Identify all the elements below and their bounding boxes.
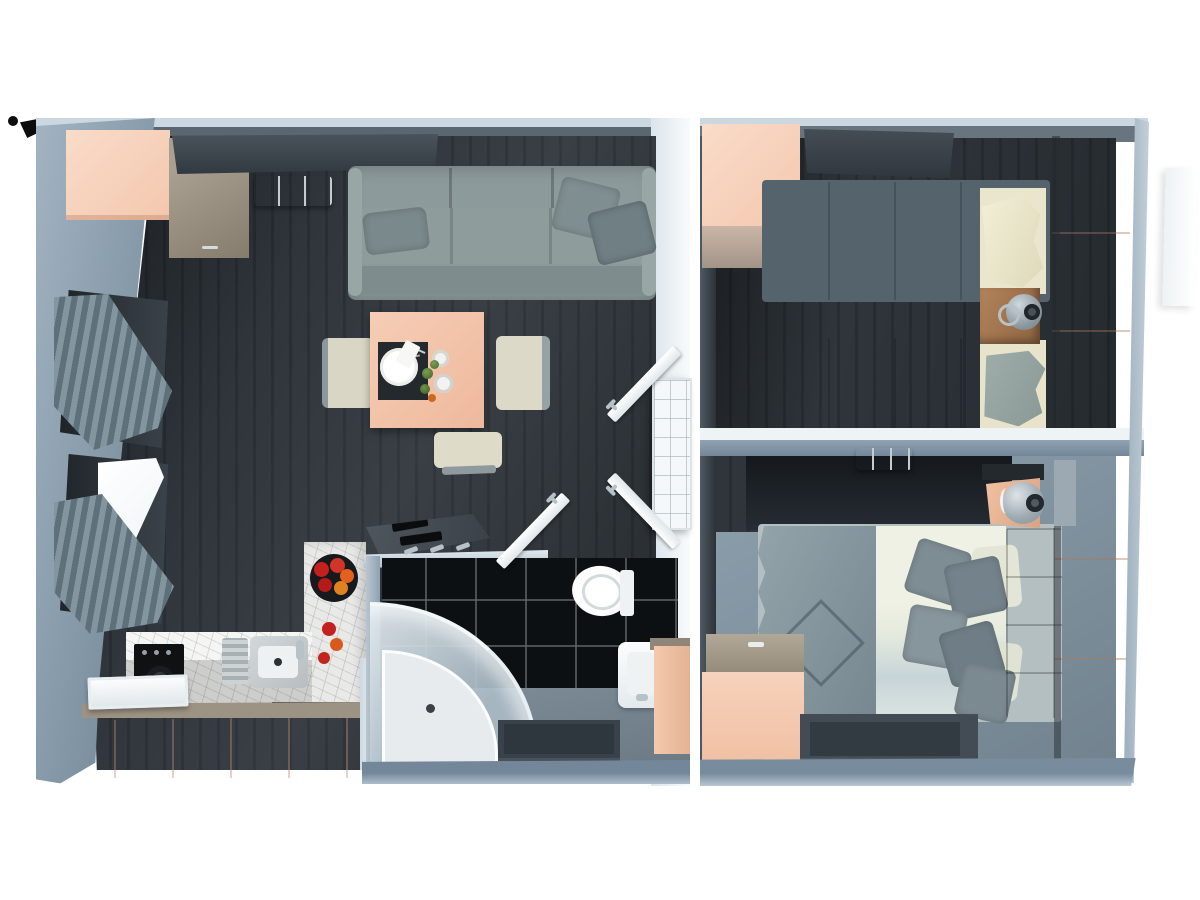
radiator bbox=[652, 378, 692, 530]
lamp-lens bbox=[1024, 304, 1040, 320]
living-unit bbox=[36, 118, 690, 786]
apple-decor-2 bbox=[330, 638, 343, 651]
twin-tall-wardrobe bbox=[1052, 136, 1130, 430]
sink-drain bbox=[274, 658, 282, 666]
apple-decor-3 bbox=[318, 652, 330, 664]
lamp-chrome-ring bbox=[998, 304, 1020, 326]
plant-3 bbox=[430, 360, 439, 369]
dresser-handle bbox=[748, 642, 764, 647]
fruit-bowl bbox=[310, 554, 358, 602]
sofa-pillow-left bbox=[362, 206, 431, 255]
basin-faucet bbox=[636, 694, 648, 701]
sofa-armrest-left bbox=[348, 168, 362, 296]
window-2-open bbox=[46, 450, 182, 636]
faucet bbox=[296, 640, 304, 660]
bath-mat-inner bbox=[504, 724, 614, 754]
wall-panel-outside bbox=[1162, 168, 1198, 307]
bed2-duvet bbox=[764, 338, 982, 436]
compass-dot bbox=[8, 116, 18, 126]
sofa-front bbox=[354, 266, 650, 294]
nightstand-top bbox=[982, 464, 1044, 480]
dining-set bbox=[316, 308, 548, 476]
oven-knob bbox=[154, 650, 159, 655]
corner-wardrobe bbox=[66, 130, 170, 220]
towel-hook bbox=[404, 546, 419, 555]
shower-drain bbox=[426, 704, 435, 713]
window-1 bbox=[46, 288, 182, 458]
bedroom-divider-wall bbox=[700, 440, 1144, 456]
rug-inner bbox=[810, 722, 960, 756]
sphere-lamp-highlight bbox=[1000, 488, 1013, 514]
vanity-cabinet bbox=[654, 646, 690, 754]
wardrobe-shadow-seam bbox=[1052, 136, 1060, 430]
kitchen-base-front bbox=[58, 716, 360, 778]
dining-chair-bottom bbox=[434, 432, 502, 468]
dining-chair-left bbox=[322, 338, 374, 408]
twin-corner-wardrobe-side bbox=[702, 226, 770, 268]
shower-tray bbox=[382, 650, 498, 768]
bath-mat bbox=[498, 720, 620, 766]
dresser-front bbox=[702, 672, 804, 762]
cabinet-handle bbox=[202, 246, 218, 249]
dishwasher bbox=[87, 674, 188, 709]
floorplan-render bbox=[0, 0, 1200, 900]
double-sphere-lamp bbox=[998, 480, 1048, 524]
apple-decor-1 bbox=[322, 622, 336, 636]
double-tall-wardrobe bbox=[1054, 460, 1130, 762]
wardrobe-shadow-seam bbox=[1054, 526, 1061, 762]
plant-1 bbox=[422, 368, 433, 379]
bedrooms-wall-bottom bbox=[700, 758, 1140, 786]
living-wall-bottom bbox=[362, 760, 690, 784]
toilet-seat-ring bbox=[580, 572, 625, 613]
single-bed-2 bbox=[762, 338, 1050, 436]
dining-chair-right bbox=[496, 336, 550, 410]
sink-drainer bbox=[222, 638, 248, 684]
sphere-lamp-lens bbox=[1026, 494, 1044, 512]
sofa bbox=[348, 166, 656, 300]
dresser-top bbox=[706, 634, 804, 674]
kitchen-sink bbox=[250, 636, 308, 688]
dining-chair-bottom-legs bbox=[442, 465, 496, 475]
berry bbox=[428, 394, 436, 402]
bed1-duvet bbox=[764, 182, 982, 300]
remote-2 bbox=[400, 531, 443, 546]
plant-2 bbox=[420, 384, 430, 394]
wardrobe-gray-panel bbox=[1054, 460, 1076, 526]
twin-wall-shelf bbox=[804, 128, 954, 178]
dining-table bbox=[370, 312, 484, 428]
air-conditioner-bedroom bbox=[856, 448, 912, 470]
air-conditioner-living bbox=[254, 176, 332, 206]
apple bbox=[334, 581, 348, 595]
twin-table-lamp bbox=[998, 292, 1046, 332]
cup-2 bbox=[434, 374, 453, 393]
single-bed-1 bbox=[762, 180, 1050, 302]
dresser bbox=[702, 634, 804, 762]
bedroom-unit bbox=[700, 118, 1152, 786]
apple bbox=[314, 562, 329, 577]
basin-inner bbox=[627, 652, 655, 696]
bathroom bbox=[366, 548, 690, 772]
oven-knob bbox=[142, 650, 147, 655]
apple bbox=[318, 578, 332, 592]
oven-knob bbox=[166, 650, 171, 655]
toilet-tank bbox=[620, 570, 634, 616]
